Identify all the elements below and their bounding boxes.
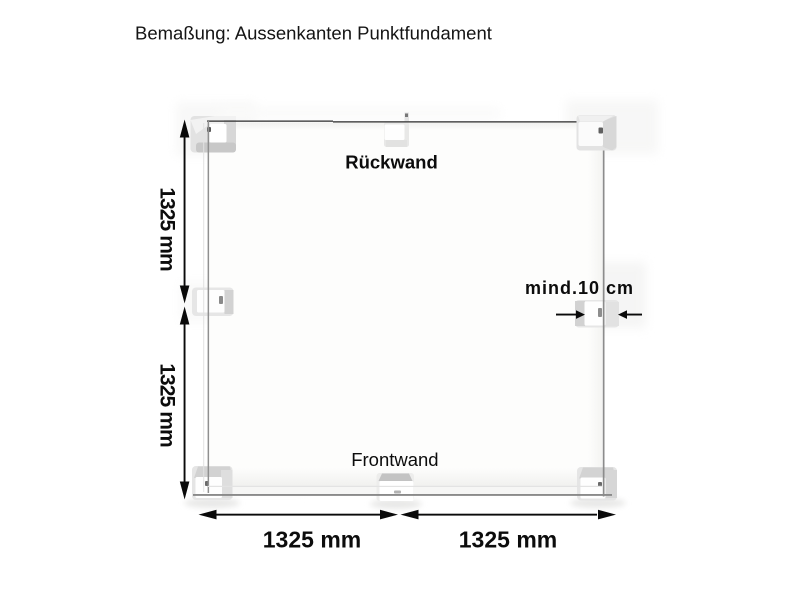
svg-text:1325 mm: 1325 mm xyxy=(155,187,178,271)
svg-text:1325 mm: 1325 mm xyxy=(459,527,557,553)
svg-text:Frontwand: Frontwand xyxy=(351,449,438,470)
svg-text:1325 mm: 1325 mm xyxy=(156,363,179,447)
svg-text:1325 mm: 1325 mm xyxy=(263,527,361,553)
svg-text:Rückwand: Rückwand xyxy=(345,151,438,172)
svg-text:mind.10 cm: mind.10 cm xyxy=(525,278,634,298)
svg-text:Bemaßung: Aussenkanten Punktfu: Bemaßung: Aussenkanten Punktfundament xyxy=(135,23,492,44)
